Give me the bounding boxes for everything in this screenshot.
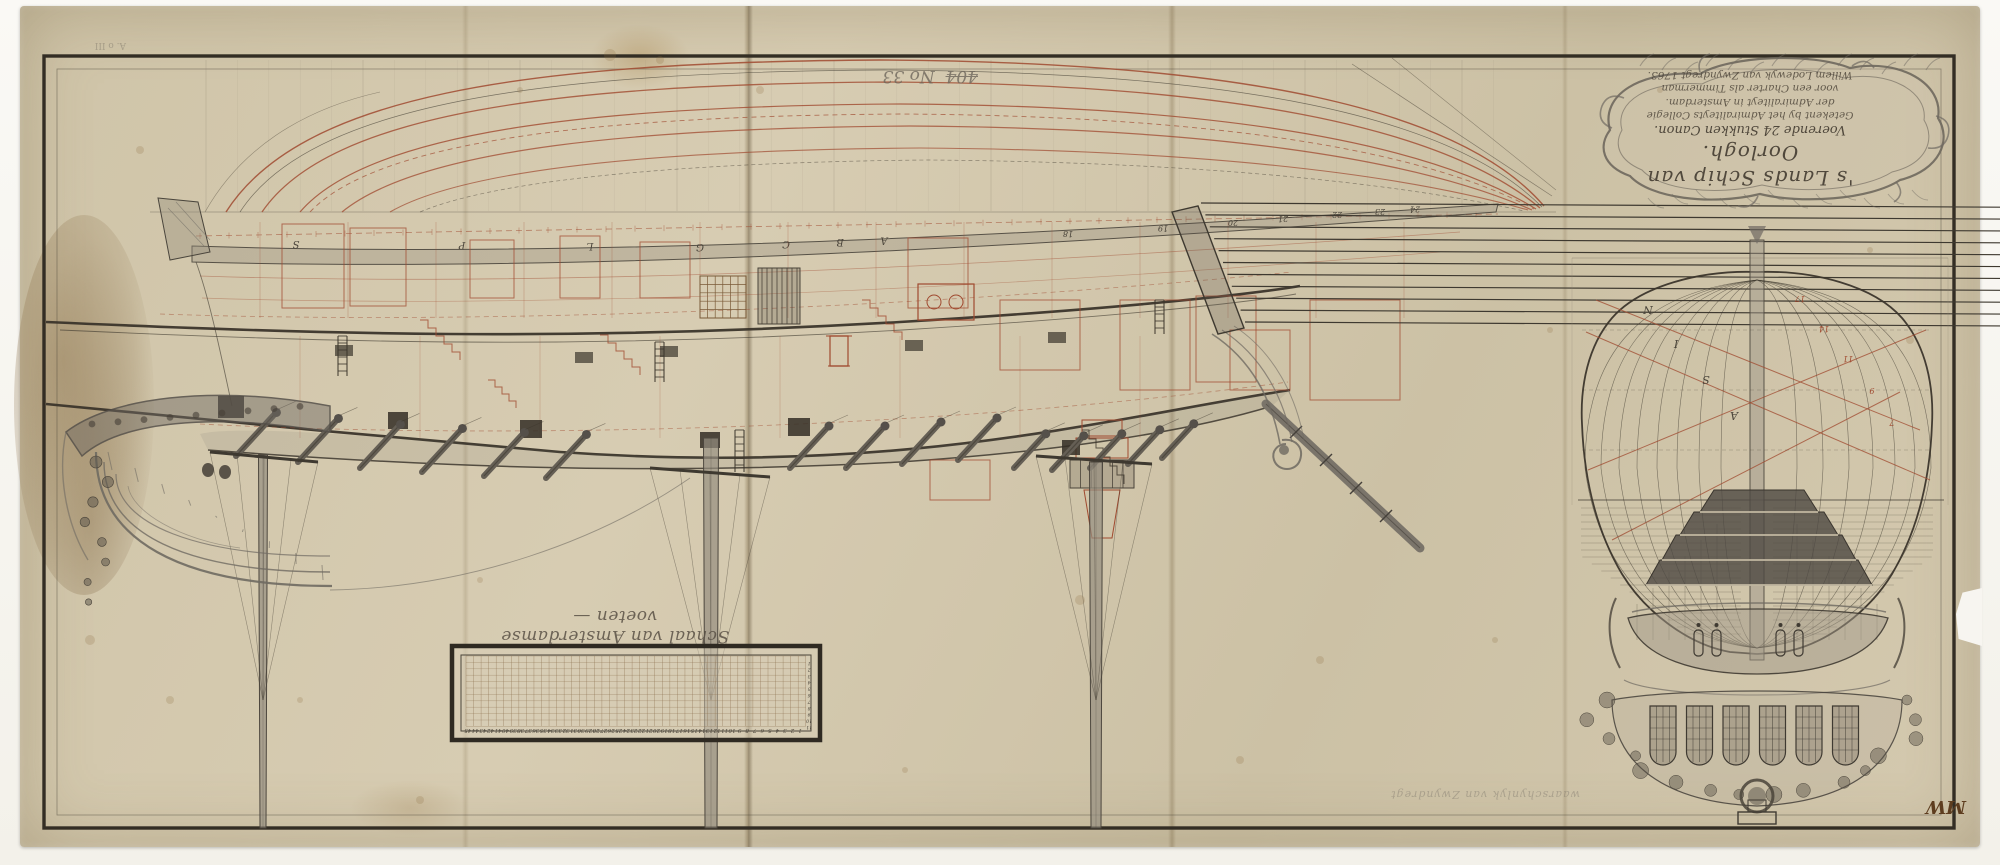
drawing-mark <box>85 599 91 605</box>
drawing-mark <box>477 577 483 583</box>
body-plan: NISA17141197 <box>1572 226 1948 660</box>
drawing-mark: 44 <box>471 727 479 733</box>
drawing-mark <box>420 320 460 360</box>
drawing-mark <box>758 268 800 324</box>
drawing-mark: 16 <box>683 727 690 733</box>
drawing-mark: 5 <box>768 727 772 733</box>
drawing-mark: 31 <box>570 727 577 733</box>
drawing-mark: 1 <box>798 727 802 733</box>
drawing-mark: 23 <box>630 727 638 733</box>
drawing-mark: 18 <box>668 727 675 733</box>
drawing-mark: 34 <box>547 727 554 733</box>
drawing-mark <box>162 484 165 494</box>
carving-blob <box>1909 714 1921 726</box>
drawing-mark <box>1757 280 1895 648</box>
drawing-mark <box>89 421 96 428</box>
drawing-mark <box>1316 656 1324 664</box>
drawing-mark <box>517 87 523 93</box>
shroud-line <box>210 452 263 700</box>
drawing-mark <box>297 697 303 703</box>
interior-red-details <box>218 222 1404 538</box>
drawing-mark: 11 <box>721 727 728 733</box>
drawing-mark <box>463 417 481 425</box>
drawing-mark <box>1266 404 1420 548</box>
drawing-mark: 20 <box>653 727 661 733</box>
drawing-mark: 24 <box>622 727 630 733</box>
shroud-line <box>1096 464 1152 700</box>
drawing-mark <box>84 578 91 585</box>
drawing-mark <box>788 418 810 436</box>
drawing-mark: 33 <box>554 727 561 733</box>
carving-blob <box>1909 732 1923 746</box>
carving-blob <box>1603 733 1615 745</box>
drawing-mark <box>158 198 210 260</box>
drawing-mark: B <box>836 236 844 247</box>
drawing-mark: 42 <box>486 727 494 733</box>
drawing-mark <box>905 340 923 351</box>
drawing-mark: 22 <box>637 727 645 733</box>
drawing-mark: A <box>880 235 888 246</box>
drawing-mark <box>1637 280 1757 648</box>
drawing-mark: 40 <box>502 727 510 733</box>
drawing-mark <box>1867 247 1873 253</box>
drawing-mark <box>116 474 330 556</box>
drawing-mark <box>416 796 424 804</box>
drawing-mark <box>949 295 963 309</box>
drawing-mark <box>881 422 890 431</box>
drawing-mark <box>141 416 148 423</box>
drawing-mark <box>1392 58 1556 190</box>
drawing-mark <box>1212 334 1280 444</box>
drawing-mark <box>339 407 357 415</box>
drawing-mark <box>128 486 240 548</box>
drawing-mark <box>196 262 232 406</box>
drawing-mark: 2 <box>807 666 811 672</box>
drawing-mark <box>993 414 1002 423</box>
drawing-mark: 3 <box>783 727 787 733</box>
drawing-mark <box>1210 227 2000 233</box>
drawing-mark <box>1352 64 1552 196</box>
drawing-mark: 8 <box>745 727 749 733</box>
drawing-mark <box>902 767 908 773</box>
drawing-mark <box>262 82 1540 212</box>
drawing-mark <box>390 148 1528 212</box>
drawing-mark <box>1241 310 2000 316</box>
drawing-mark <box>1189 419 1198 428</box>
drawing-mark <box>219 410 226 417</box>
drawing-mark: A <box>1730 409 1739 422</box>
drawing-mark <box>310 114 1534 212</box>
cartouche-ornament <box>1600 54 1948 208</box>
drawing-mark: 38 <box>517 727 524 733</box>
drawing-mark <box>1697 623 1701 627</box>
drawing-mark: 29 <box>585 727 593 733</box>
shroud-line <box>1036 456 1096 700</box>
drawing-mark: 19 <box>1158 223 1168 232</box>
drawing-mark <box>660 346 678 357</box>
drawing-mark <box>271 405 278 412</box>
drawing-mark <box>342 126 1532 212</box>
drawing-mark <box>1779 623 1783 627</box>
drawing-mark <box>656 56 664 64</box>
drawing-mark: S <box>292 238 299 249</box>
drawing-mark <box>1657 280 1757 648</box>
scale-bar: 1234567891011121314151617181920212223242… <box>452 646 820 740</box>
carving-blob <box>1633 763 1649 779</box>
drawing-mark: 7 <box>807 698 810 704</box>
drawing-mark <box>245 407 252 414</box>
drawing-mark <box>1888 194 1904 204</box>
drawing-mark <box>80 517 90 527</box>
drawing-mark: 36 <box>532 727 539 733</box>
drawing-mark <box>1547 327 1553 333</box>
drawing-mark: 7 <box>752 727 756 733</box>
drawing-mark <box>1234 326 1304 440</box>
drawing-mark <box>756 86 764 94</box>
drawing-mark <box>1757 280 1873 648</box>
ship-draught-drawing: SPLGCBA18192021222324NISA171411971234567… <box>0 0 2000 865</box>
drawing-mark: I <box>1673 337 1679 350</box>
drawing-mark <box>488 380 516 408</box>
drawing-mark <box>1230 330 1290 390</box>
drawing-mark <box>334 414 343 423</box>
drawing-mark <box>1222 330 1292 442</box>
drawing-mark <box>396 420 405 429</box>
keel-band: SPLGCBA18192021222324 <box>158 198 1498 264</box>
drawing-mark: 18 <box>1063 229 1073 238</box>
drawing-mark: 2 <box>790 727 795 733</box>
drawing-mark: 24 <box>1410 204 1421 213</box>
drawing-mark <box>98 538 107 547</box>
drawing-mark <box>102 558 110 566</box>
drawing-mark <box>1906 336 1914 344</box>
drawing-mark: P <box>458 239 466 250</box>
drawing-mark: 6 <box>760 727 764 733</box>
drawing-mark: 17 <box>1794 294 1805 303</box>
drawing-mark <box>335 345 353 356</box>
photograph-background: SPLGCBA18192021222324NISA171411971234567… <box>0 0 2000 865</box>
carving-blob <box>1870 748 1886 764</box>
drawing-mark: 13 <box>705 727 712 733</box>
drawing-mark <box>242 529 243 532</box>
drawing-mark <box>85 635 95 645</box>
drawing-mark: 10 <box>806 718 812 724</box>
drawing-mark <box>937 418 946 427</box>
drawing-mark: 8 <box>807 705 810 711</box>
drawing-mark <box>1757 280 1931 648</box>
drawing-mark <box>219 465 231 479</box>
drawing-mark: L <box>586 240 594 251</box>
drawing-mark <box>1926 58 1940 70</box>
drawing-mark <box>1748 787 1766 805</box>
drawing-mark <box>189 500 191 506</box>
drawing-mark: 7 <box>1889 418 1895 427</box>
drawing-mark <box>1628 609 1888 674</box>
drawing-mark: 9 <box>737 727 741 733</box>
carving-blob <box>1669 775 1683 789</box>
figurehead-scroll <box>1279 445 1289 455</box>
drawing-mark <box>1680 512 1838 535</box>
drawing-mark <box>88 497 98 507</box>
drawing-mark <box>1684 62 1698 74</box>
drawing-mark <box>1232 286 2000 292</box>
carving-blob <box>1860 766 1870 776</box>
drawing-mark <box>102 476 113 487</box>
drawing-mark: 28 <box>592 727 600 733</box>
drawing-mark: 45 <box>464 727 472 733</box>
drawing-mark <box>452 646 820 740</box>
stern-gallery <box>63 395 332 605</box>
drawing-mark <box>193 412 200 419</box>
drawing-mark <box>202 463 214 477</box>
drawing-mark <box>582 430 591 439</box>
drawing-mark: 4 <box>807 679 811 685</box>
drawing-mark <box>350 228 406 306</box>
drawing-mark <box>1075 595 1085 605</box>
drawing-mark <box>918 284 974 320</box>
drawing-mark: 25 <box>615 727 623 733</box>
drawing-mark <box>1310 300 1400 400</box>
drawing-mark <box>135 468 138 482</box>
drawing-mark <box>1214 239 2000 245</box>
carving-blob <box>1705 784 1717 796</box>
drawing-mark <box>46 286 1300 334</box>
drawing-mark: 3 <box>807 673 810 679</box>
drawing-mark: 14 <box>1819 324 1829 333</box>
drawing-mark: 19 <box>660 727 667 733</box>
drawing-mark <box>226 60 1544 212</box>
drawing-mark <box>1757 280 1915 648</box>
drawing-mark: 1 <box>808 660 811 666</box>
drawing-mark <box>604 49 616 61</box>
carving-blob <box>1631 751 1641 761</box>
drawing-mark <box>830 336 848 366</box>
drawing-mark: 43 <box>479 727 487 733</box>
drawing-mark: 5 <box>807 686 810 692</box>
drawing-mark: 37 <box>524 727 531 733</box>
drawing-mark <box>825 422 834 431</box>
drawing-mark: S <box>1702 373 1710 386</box>
drawing-mark: 15 <box>690 727 697 733</box>
drawing-mark: 6 <box>807 692 810 698</box>
drawing-mark <box>115 418 122 425</box>
drawing-mark: 17 <box>675 727 682 733</box>
drawing-mark <box>458 424 467 433</box>
drawing-mark <box>1715 623 1719 627</box>
drawing-mark <box>1757 280 1849 648</box>
drawing-mark <box>1227 274 2000 280</box>
drawing-mark: N <box>1643 303 1654 316</box>
drawing-mark: 22 <box>1332 210 1343 219</box>
drawing-mark: 20 <box>1228 218 1239 227</box>
drawing-mark: 14 <box>698 727 705 733</box>
drawing-mark <box>216 516 218 518</box>
stern-elevation <box>1580 490 1923 824</box>
drawing-mark <box>167 414 174 421</box>
drawing-mark: 27 <box>600 727 608 733</box>
drawing-mark <box>1662 535 1856 560</box>
drawing-mark <box>520 428 529 437</box>
drawing-mark <box>1662 58 1676 70</box>
drawing-mark <box>1117 429 1126 438</box>
drawing-mark <box>60 294 1296 342</box>
drawing-mark: 30 <box>577 727 584 733</box>
drawing-mark <box>862 300 902 340</box>
carving-blob <box>1580 713 1594 727</box>
drawing-mark <box>322 565 323 580</box>
drawing-mark <box>1585 280 1757 648</box>
drawing-mark <box>1912 190 1928 200</box>
drawing-mark: 21 <box>646 727 654 733</box>
carving-blob <box>1902 695 1912 705</box>
drawing-mark: 35 <box>539 727 546 733</box>
drawing-mark: 26 <box>607 727 615 733</box>
shroud-line <box>263 462 318 700</box>
drawing-mark <box>166 696 174 704</box>
drawing-mark: 11 <box>806 724 812 730</box>
drawing-mark <box>1738 812 1776 824</box>
drawing-mark <box>1699 280 1757 648</box>
drawing-mark: 10 <box>728 727 735 733</box>
drawing-mark: 32 <box>562 727 569 733</box>
drawing-mark <box>1041 429 1050 438</box>
carving-blob <box>1838 776 1850 788</box>
drawing-mark: 11 <box>1843 354 1853 363</box>
drawing-mark <box>1604 58 1944 200</box>
drawing-mark <box>1223 263 2000 269</box>
drawing-mark <box>282 224 344 308</box>
drawing-mark <box>90 456 102 468</box>
drawing-mark: 12 <box>713 727 720 733</box>
drawing-mark: 4 <box>775 727 780 733</box>
drawing-mark <box>297 403 304 410</box>
drawing-mark <box>1797 623 1801 627</box>
drawing-mark: 23 <box>1375 207 1386 216</box>
drawing-mark <box>192 204 1498 264</box>
drawing-mark <box>1245 322 2000 328</box>
drawing-mark <box>1619 280 1757 648</box>
drawing-mark <box>1201 203 2000 209</box>
drawing-mark <box>1657 87 1663 93</box>
drawing-mark <box>1700 490 1818 512</box>
drawing-mark <box>1079 431 1088 440</box>
drawing-mark <box>300 104 1536 212</box>
drawing-mark <box>136 146 144 154</box>
drawing-mark: 39 <box>509 727 516 733</box>
drawing-mark <box>1601 280 1757 648</box>
drawing-mark <box>927 295 941 309</box>
carving-blob <box>1796 783 1810 797</box>
drawing-mark <box>1155 425 1164 434</box>
drawing-mark <box>108 452 112 470</box>
drawing-mark <box>205 92 380 212</box>
drawing-mark: 9 <box>807 711 810 717</box>
drawing-mark <box>1048 332 1066 343</box>
drawing-mark <box>330 478 690 590</box>
drawing-mark <box>930 460 990 500</box>
drawing-mark: 9 <box>1869 386 1874 395</box>
drawing-mark <box>1492 637 1498 643</box>
drawing-mark: 41 <box>495 727 503 733</box>
drawing-mark <box>1236 756 1244 764</box>
drawing-mark <box>575 352 593 363</box>
carving-blob <box>1599 692 1615 708</box>
drawing-mark <box>1273 440 1301 469</box>
drawing-mark <box>1648 198 1664 208</box>
drawing-mark <box>1219 251 2000 257</box>
drawing-mark <box>1646 560 1872 585</box>
drawing-mark: C <box>782 238 790 249</box>
